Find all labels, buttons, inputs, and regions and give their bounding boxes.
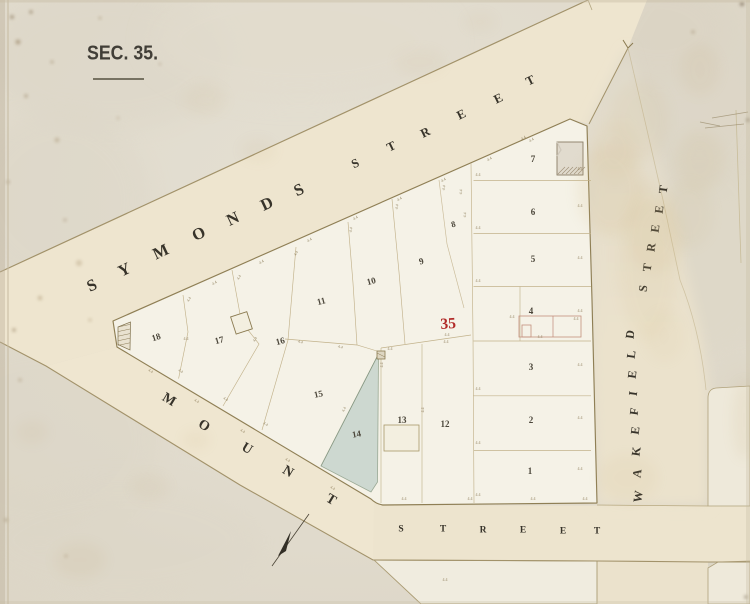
- svg-text:4.4: 4.4: [583, 496, 588, 501]
- svg-text:35: 35: [440, 315, 457, 333]
- svg-text:12: 12: [441, 419, 451, 429]
- svg-text:4.4: 4.4: [388, 346, 393, 351]
- svg-text:4.4: 4.4: [476, 386, 481, 391]
- svg-text:4.4: 4.4: [348, 227, 354, 233]
- svg-text:S: S: [398, 525, 403, 535]
- svg-text:4.4: 4.4: [394, 204, 400, 210]
- svg-text:4.4: 4.4: [420, 408, 425, 413]
- svg-text:4.4: 4.4: [468, 496, 473, 501]
- svg-text:3: 3: [529, 362, 534, 372]
- svg-text:4.4: 4.4: [379, 363, 384, 368]
- svg-text:4.4: 4.4: [441, 185, 447, 191]
- svg-text:5: 5: [531, 254, 536, 264]
- svg-text:E: E: [520, 526, 526, 536]
- svg-text:4.4: 4.4: [578, 308, 583, 313]
- svg-text:4.4: 4.4: [476, 492, 481, 497]
- svg-text:4.4: 4.4: [578, 255, 583, 260]
- svg-text:4.4: 4.4: [402, 496, 407, 501]
- svg-text:13: 13: [398, 415, 408, 425]
- svg-text:4.4: 4.4: [578, 415, 583, 420]
- svg-text:T: T: [594, 527, 601, 537]
- svg-text:4.4: 4.4: [444, 339, 449, 344]
- svg-text:4.4: 4.4: [445, 332, 450, 337]
- svg-text:4.4: 4.4: [574, 316, 579, 321]
- svg-text:4.4: 4.4: [578, 466, 583, 471]
- svg-text:4.4: 4.4: [476, 278, 481, 283]
- svg-text:4: 4: [529, 306, 534, 316]
- svg-text:4.4: 4.4: [538, 334, 543, 339]
- svg-text:4.4: 4.4: [443, 577, 448, 582]
- svg-text:4.4: 4.4: [476, 172, 481, 177]
- svg-text:R: R: [480, 526, 487, 536]
- svg-text:4.4: 4.4: [578, 362, 583, 367]
- svg-text:4.4: 4.4: [476, 440, 481, 445]
- svg-text:T: T: [440, 525, 447, 535]
- svg-text:7: 7: [531, 154, 536, 164]
- svg-text:E: E: [560, 527, 566, 537]
- svg-text:6: 6: [531, 207, 536, 217]
- svg-text:4.4: 4.4: [462, 212, 467, 217]
- svg-text:4.4: 4.4: [531, 496, 536, 501]
- svg-text:4.4: 4.4: [184, 336, 189, 341]
- svg-text:2: 2: [529, 415, 534, 425]
- svg-text:4.4: 4.4: [510, 314, 515, 319]
- svg-text:4.4: 4.4: [476, 225, 481, 230]
- svg-text:1: 1: [528, 466, 533, 476]
- svg-text:4.4: 4.4: [458, 189, 463, 194]
- svg-text:SEC. 35.: SEC. 35.: [87, 42, 158, 65]
